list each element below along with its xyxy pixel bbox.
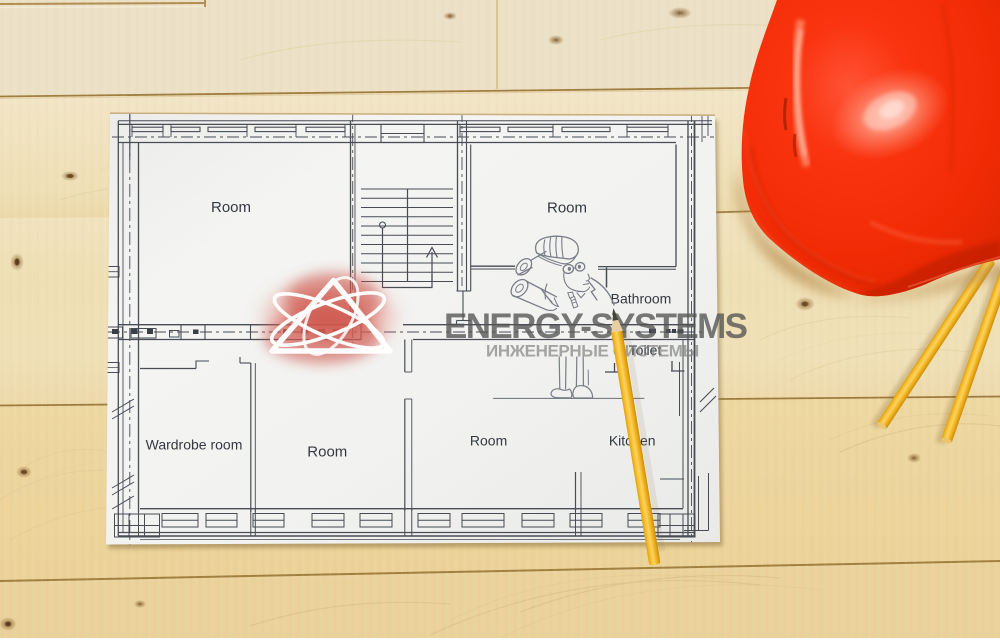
svg-text:Bathroom: Bathroom <box>611 291 672 307</box>
svg-text:ИНЖЕНЕРНЫЕ СИСТЕМЫ: ИНЖЕНЕРНЫЕ СИСТЕМЫ <box>486 342 699 361</box>
svg-text:Room: Room <box>470 432 507 448</box>
svg-text:Room: Room <box>307 444 347 461</box>
svg-text:Wardrobe room: Wardrobe room <box>146 437 243 453</box>
svg-text:Room: Room <box>211 199 251 216</box>
svg-text:ENERGY-SYSTEMS: ENERGY-SYSTEMS <box>444 307 747 346</box>
svg-text:Room: Room <box>547 200 587 217</box>
